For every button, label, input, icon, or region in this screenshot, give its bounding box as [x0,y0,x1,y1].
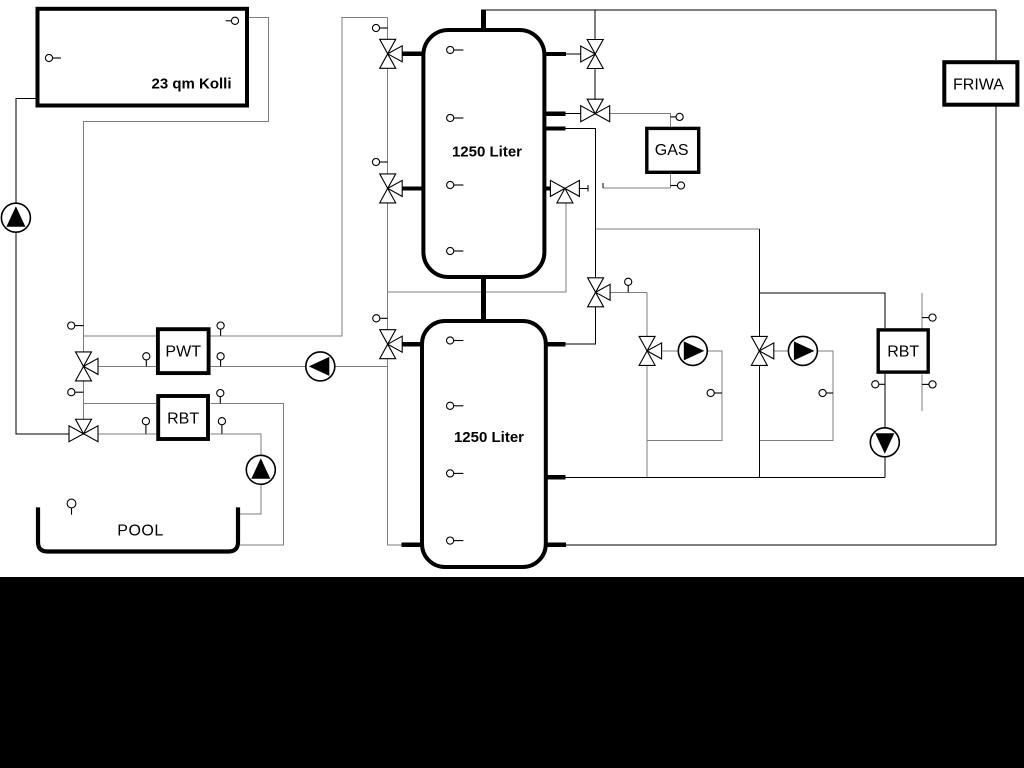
svg-text:1250 Liter: 1250 Liter [454,429,524,446]
svg-text:RBT: RBT [167,410,199,427]
svg-text:RBT: RBT [887,344,919,361]
svg-text:GAS: GAS [655,142,689,159]
svg-text:23 qm Kolli: 23 qm Kolli [151,76,231,93]
svg-text:PWT: PWT [165,343,201,360]
svg-text:POOL: POOL [117,522,163,539]
svg-text:1250 Liter: 1250 Liter [452,144,522,161]
svg-text:FRIWA: FRIWA [953,77,1004,94]
